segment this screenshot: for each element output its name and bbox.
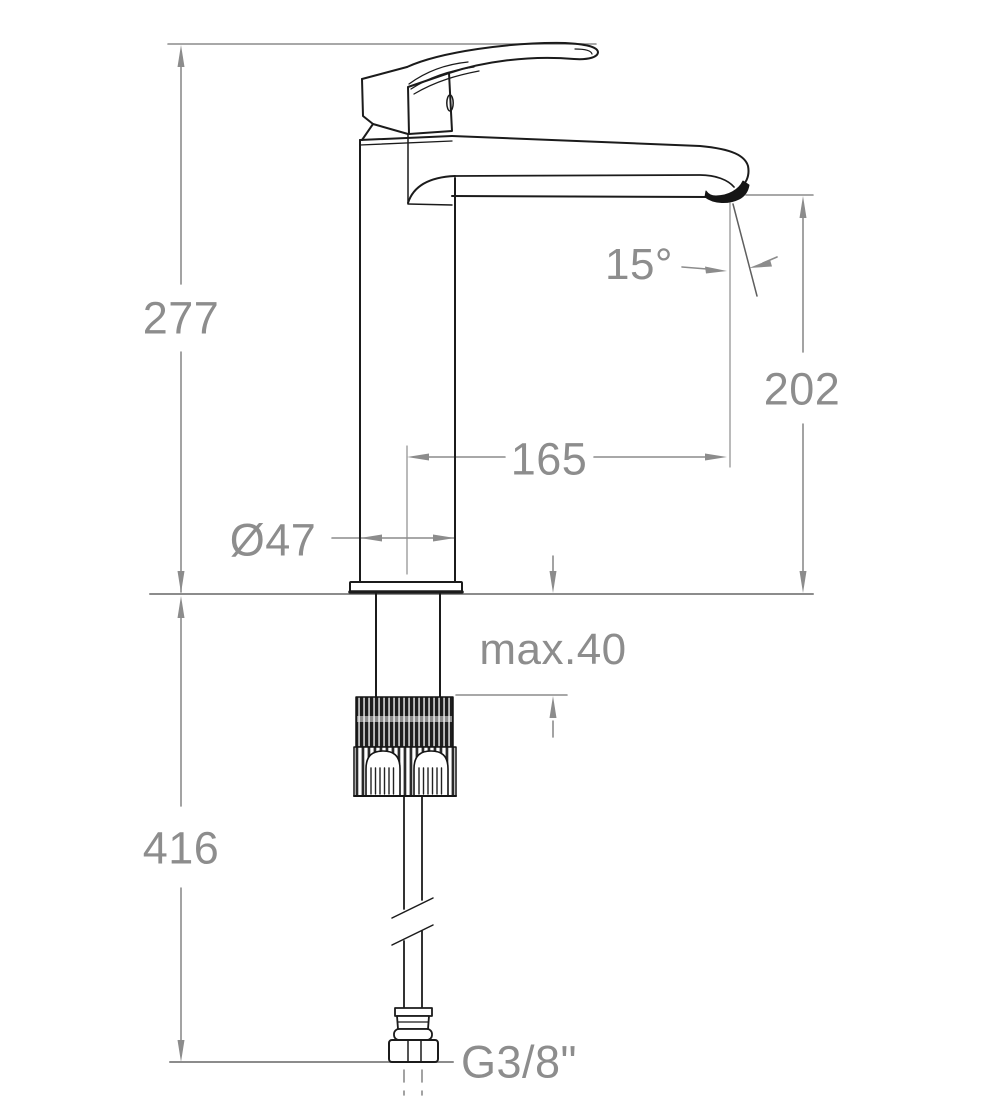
lever-handle	[362, 43, 598, 140]
faucet-outline	[350, 43, 749, 1095]
aerator	[705, 181, 749, 203]
connector-hex-nut	[389, 1040, 438, 1062]
base-flange	[350, 582, 462, 592]
angle-reference-line	[733, 204, 757, 296]
dim-under-counter-line	[178, 596, 185, 1062]
spout	[452, 136, 749, 203]
dim-max-thickness-line	[550, 556, 557, 737]
dim-body-diameter-line	[332, 535, 455, 542]
mounting-nut	[354, 697, 456, 796]
faucet-line-art	[0, 0, 1000, 1096]
pipe-break-mark	[392, 925, 433, 945]
dim-spout-height-line	[800, 196, 807, 593]
supply-hose	[392, 797, 433, 1008]
threaded-shank	[376, 594, 440, 697]
dim-total-height-line	[178, 45, 185, 593]
pipe-break-mark	[392, 898, 433, 918]
hose-connector	[389, 1008, 438, 1095]
faucet-technical-drawing: 277 416 Ø47 165 202 15° max.40 G3/8"	[0, 0, 1000, 1096]
